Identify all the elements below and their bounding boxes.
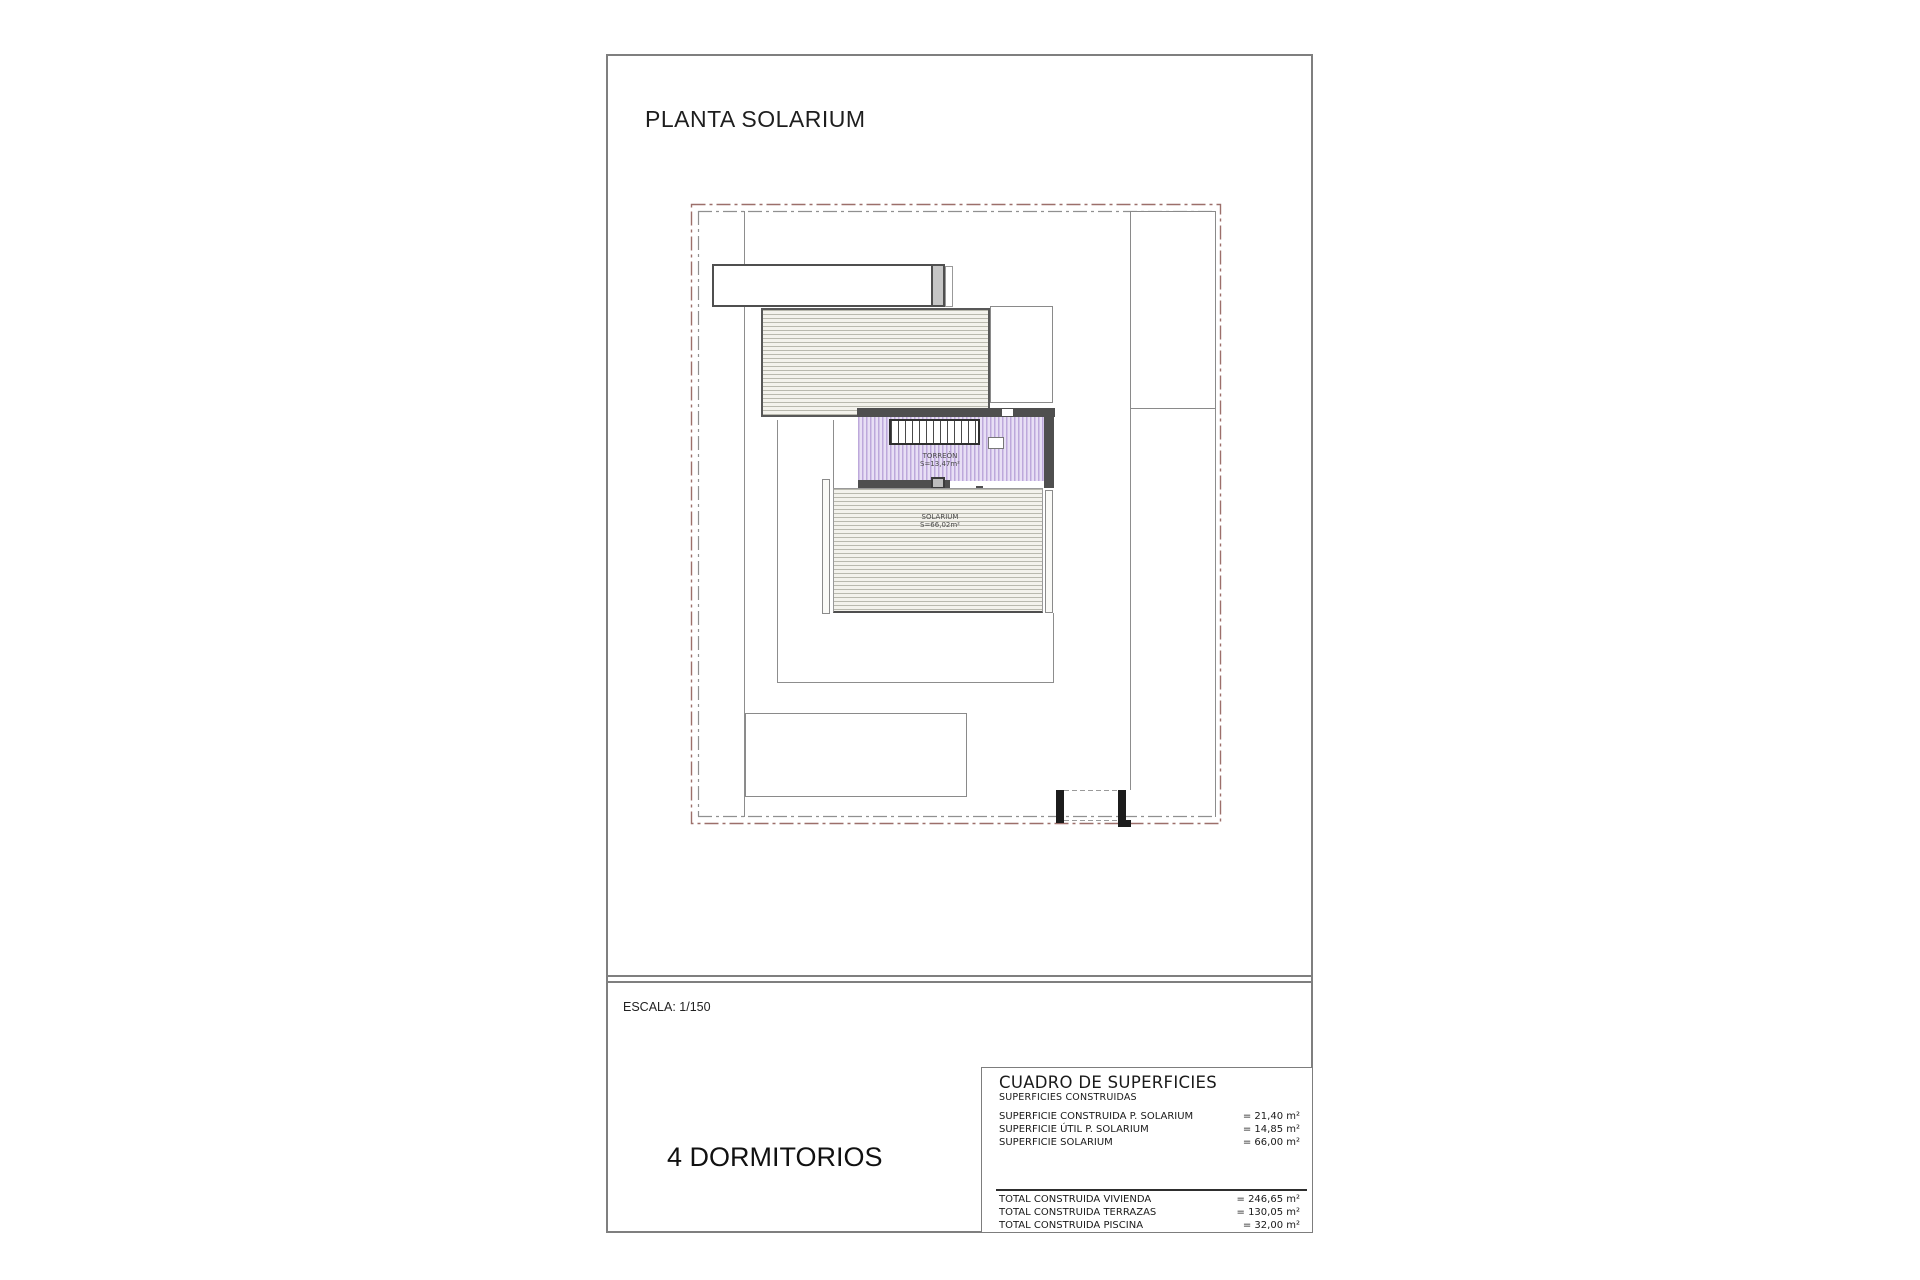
bedrooms-label: 4 DORMITORIOS [667,1142,883,1173]
row-value: = 130,05 m² [1237,1207,1300,1218]
page-title: PLANTA SOLARIUM [645,106,866,133]
table-row: TOTAL CONSTRUIDA VIVIENDA = 246,65 m² [999,1194,1300,1205]
porch-roof-strip [712,264,933,307]
torreon-north-wall [857,408,1055,417]
row-label: SUPERFICIE ÚTIL P. SOLARIUM [999,1124,1149,1135]
drawing-sheet-page: PLANTA SOLARIUM ESCALA: 1/150 4 DORMITOR… [0,0,1920,1280]
side-terrace-strip [1130,211,1216,409]
row-label: SUPERFICIE SOLARIUM [999,1137,1113,1148]
row-label: TOTAL CONSTRUIDA VIVIENDA [999,1194,1151,1205]
surfaces-table-title: CUADRO DE SUPERFICIES [999,1073,1217,1092]
torreon-wall-opening [1002,409,1013,416]
solarium-label: SOLARIUM S=66,02m² [895,514,985,529]
gate-post-right [1118,790,1126,827]
table-row: SUPERFICIE ÚTIL P. SOLARIUM = 14,85 m² [999,1124,1300,1135]
plan-linework [0,0,1920,1280]
lower-roof-flat [990,306,1053,403]
room-area: S=66,02m² [895,522,985,530]
room-area: S=13,47m² [895,461,985,469]
table-row: TOTAL CONSTRUIDA TERRAZAS = 130,05 m² [999,1207,1300,1218]
table-row: SUPERFICIE CONSTRUIDA P. SOLARIUM = 21,4… [999,1111,1300,1122]
table-row: TOTAL CONSTRUIDA PISCINA = 32,00 m² [999,1220,1300,1231]
chimney-box [988,437,1004,449]
balustrade-right [1045,490,1053,613]
table-row: SUPERFICIE SOLARIUM = 66,00 m² [999,1137,1300,1148]
surfaces-table-subtitle: SUPERFICIES CONSTRUIDAS [999,1092,1137,1103]
porch-roof-tab [945,266,953,307]
row-value: = 66,00 m² [1243,1137,1300,1148]
row-value: = 32,00 m² [1243,1220,1300,1231]
row-label: SUPERFICIE CONSTRUIDA P. SOLARIUM [999,1111,1193,1122]
row-label: TOTAL CONSTRUIDA TERRAZAS [999,1207,1156,1218]
row-value: = 21,40 m² [1243,1111,1300,1122]
gate-post-left [1056,790,1064,823]
porch-roof-cap [931,264,945,307]
torreon-east-wall [1044,408,1054,488]
gate-post-foot [1126,820,1131,827]
table-separator [996,1189,1307,1191]
lower-roof-hatched [761,308,990,417]
lower-terrace [745,713,967,797]
torreon-label: TORREÓN S=13,47m² [895,453,985,468]
corridor-lines [1131,409,1216,817]
row-value: = 246,65 m² [1237,1194,1300,1205]
balustrade-left [822,479,830,614]
solarium-deck [833,488,1043,613]
staircase [889,419,980,445]
row-value: = 14,85 m² [1243,1124,1300,1135]
row-label: TOTAL CONSTRUIDA PISCINA [999,1220,1143,1231]
scale-label: ESCALA: 1/150 [623,1000,711,1014]
surfaces-table: CUADRO DE SUPERFICIES SUPERFICIES CONSTR… [981,1067,1313,1233]
